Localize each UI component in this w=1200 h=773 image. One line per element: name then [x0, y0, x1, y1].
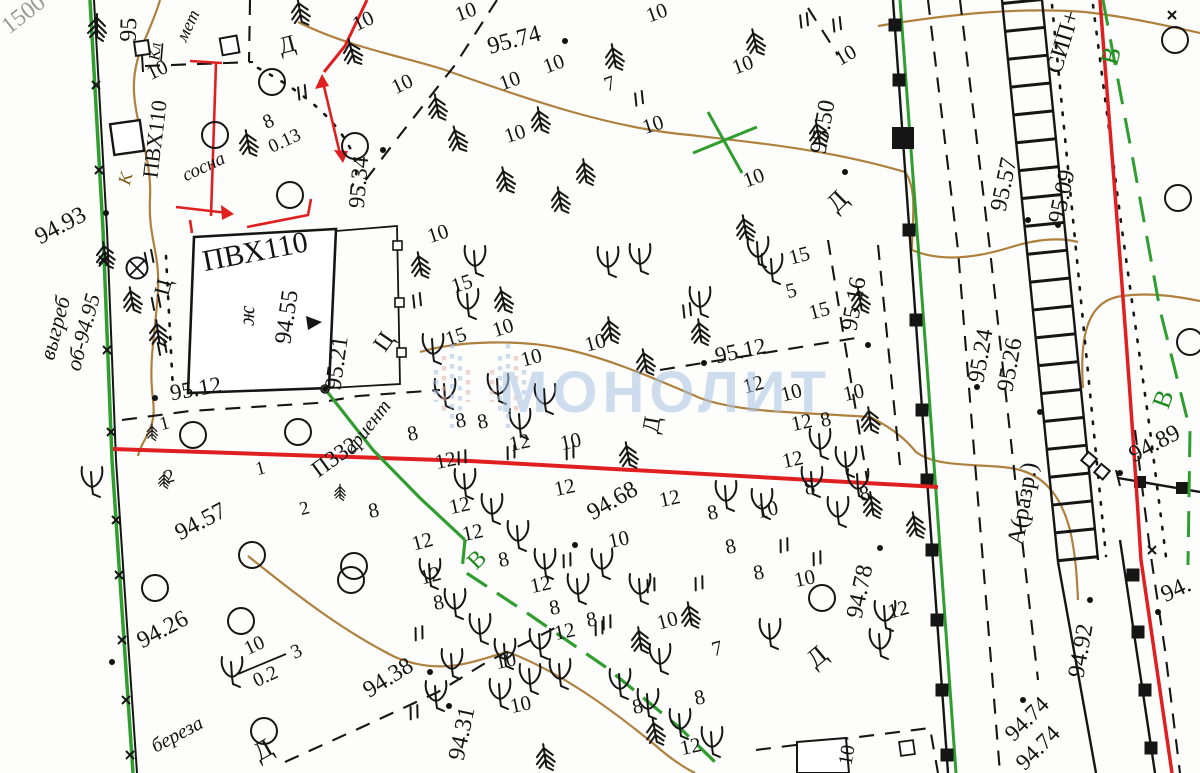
deciduous-tree-icon [445, 589, 466, 619]
map-label: 8 [630, 693, 645, 719]
map-label: 10 [489, 313, 516, 342]
map-label: 8 [366, 497, 381, 523]
map-label: 10 [643, 0, 671, 27]
canopy-circle-icon [1177, 329, 1200, 355]
grass-icon [410, 293, 424, 308]
map-label: 12 [552, 473, 578, 501]
elevation-dot-icon [152, 395, 158, 401]
conifer-tree-icon [689, 318, 711, 347]
map-label: 15 [786, 241, 812, 270]
map-label: 12 [657, 484, 683, 512]
elevation-dot-icon [109, 659, 115, 665]
deciduous-tree-icon [810, 429, 831, 459]
elevation-dot-icon [877, 545, 883, 551]
canopy-circle-icon [180, 422, 206, 448]
map-label: 7 [709, 635, 725, 661]
power-line [889, 0, 957, 773]
map-label: 10 [606, 525, 632, 553]
map-label: 94.93 [31, 202, 91, 250]
map-label: 7 [601, 70, 619, 96]
elevation-dot-icon [103, 210, 109, 216]
map-label: 95.57 [986, 155, 1023, 213]
map-label: 12 [507, 428, 533, 456]
elevation-dot-icon [1087, 597, 1093, 603]
map-label: 94.78 [842, 562, 879, 620]
map-label: 10 [830, 39, 860, 70]
deciduous-tree-icon [442, 649, 463, 679]
map-label: 8 [496, 546, 511, 572]
survey-map-canvas: 150095КлметПВХ110КДсосна80.1395.3495.741… [0, 0, 1200, 773]
map-label: 8 [705, 499, 720, 525]
deciduous-tree-icon [530, 629, 551, 659]
map-label: 12 [780, 445, 806, 473]
map-label: 10 [558, 427, 584, 455]
map-label: береза [148, 712, 207, 757]
elevation-dot-icon [974, 384, 980, 390]
map-label: 12 [433, 446, 459, 474]
elevation-dot-icon [446, 703, 452, 709]
deciduous-tree-icon [716, 481, 737, 511]
map-label: 94.92 [1064, 622, 1099, 680]
map-label: 10 [639, 110, 666, 139]
elevation-dot-icon [427, 669, 433, 675]
map-label: В [1095, 44, 1128, 68]
map-label: 10 [540, 49, 568, 79]
map-label: 1 [253, 457, 268, 480]
deciduous-tree-icon [598, 247, 619, 277]
map-label: 10 [508, 690, 534, 718]
grass-icon [830, 17, 844, 32]
map-label: 10 [740, 163, 768, 193]
deciduous-tree-icon [748, 237, 769, 267]
survey-map: 150095КлметПВХ110КДсосна80.1395.3495.741… [0, 0, 1200, 773]
map-label: В [462, 545, 492, 575]
map-label: 10 [501, 119, 528, 148]
canopy-circle-icon [338, 567, 364, 593]
map-label: 95.16 [837, 275, 872, 333]
elevation-dot-icon [1025, 217, 1031, 223]
deciduous-tree-icon [82, 467, 103, 497]
map-label: 95.12 [168, 372, 223, 406]
canopy-circle-icon [228, 608, 254, 634]
map-label: 12 [552, 617, 578, 645]
map-label: Д [820, 184, 853, 217]
map-label: 95.50 [806, 98, 841, 156]
map-label: 12 [409, 527, 435, 556]
map-label: сосна [179, 148, 229, 186]
map-label: ПВХ110 [137, 99, 171, 180]
map-label: 8 [584, 606, 599, 632]
canopy-circle-icon [1162, 27, 1188, 53]
elevation-dot-icon [842, 169, 848, 175]
elevation-dot-icon [380, 147, 386, 153]
map-label: 5 [783, 277, 799, 303]
conifer-tree-icon [904, 511, 926, 541]
map-label: Д [800, 640, 832, 674]
map-label: СИП+ [1041, 7, 1085, 76]
conifer-tree-icon [121, 286, 143, 316]
deciduous-tree-icon [423, 334, 444, 364]
map-label: 8 [475, 408, 490, 434]
deciduous-tree-icon [592, 549, 613, 579]
map-label: 10 [496, 66, 524, 96]
map-label: 94.26 [133, 606, 193, 654]
map-label: 12 [678, 732, 704, 760]
deciduous-tree-icon [222, 657, 243, 687]
deciduous-tree-icon [610, 669, 631, 699]
canopy-circle-icon [342, 133, 368, 159]
deciduous-tree-icon [836, 447, 857, 477]
watermark-text: МОНОЛИТ [499, 360, 831, 425]
left-fence [90, 0, 137, 773]
map-label: 8 [259, 109, 277, 133]
map-label: Ц [149, 276, 177, 298]
canopy-circle-icon [239, 542, 265, 568]
deciduous-tree-icon [482, 494, 503, 524]
conifer-tree-icon [529, 106, 551, 136]
elevation-dot-icon [562, 38, 568, 44]
deciduous-tree-icon [760, 619, 781, 649]
elevation-dot-icon [1037, 409, 1043, 415]
map-label: 95.34 [344, 155, 373, 209]
map-label: 12 [447, 491, 473, 519]
map-label: 95.74 [485, 21, 544, 60]
grass-icon [778, 538, 791, 552]
deciduous-tree-icon [828, 497, 849, 527]
map-label: 95.26 [993, 336, 1028, 394]
deciduous-tree-icon [426, 681, 447, 711]
map-label: 15 [806, 296, 832, 325]
deciduous-tree-icon [520, 664, 541, 694]
map-label: 10 [729, 50, 757, 80]
map-label: 10 [841, 378, 867, 406]
conifer-tree-icon [629, 626, 651, 655]
map-label: 8 [723, 533, 738, 559]
map-label: 10 [387, 68, 416, 99]
conifer-tree-icon [534, 743, 556, 772]
map-label: 8 [692, 684, 707, 710]
map-label: 10 [424, 219, 451, 248]
map-label: 10 [241, 631, 268, 659]
conifer-tree-icon [445, 124, 469, 155]
map-label: 10 [452, 0, 480, 26]
grass-icon [693, 576, 706, 590]
map-label: Ц [369, 327, 400, 356]
map-label: В [1146, 386, 1179, 412]
deciduous-tree-icon [630, 244, 651, 274]
map-label: 15 [448, 269, 475, 298]
elevation-dot-icon [1155, 609, 1161, 615]
grass-icon [680, 303, 694, 318]
map-label: К [114, 169, 137, 188]
grass-icon [632, 91, 646, 106]
canopy-circle-icon [142, 575, 168, 601]
watermark: МОНОЛИТ [436, 344, 831, 428]
deciduous-tree-icon [650, 644, 671, 674]
deciduous-tree-icon [762, 254, 783, 284]
map-label: 95.09 [1044, 167, 1081, 225]
deciduous-tree-icon [690, 287, 711, 317]
map-label: 94.68 [583, 476, 643, 526]
deciduous-tree-icon [568, 574, 589, 604]
elevation-dot-icon [865, 342, 871, 348]
conifer-tree-icon [549, 186, 571, 216]
deciduous-tree-icon [508, 521, 529, 551]
canopy-circle-icon [277, 182, 303, 208]
deciduous-tree-icon [550, 659, 571, 689]
map-label: 8 [751, 559, 766, 585]
map-label: 12 [528, 570, 554, 598]
structure-square [220, 36, 240, 56]
conifer-tree-icon [493, 165, 516, 195]
map-label: 0.2 [249, 661, 281, 692]
conifer-tree-icon [237, 129, 259, 159]
map-label: 8 [405, 420, 420, 446]
map-label: 10 [654, 606, 680, 635]
canopy-circle-icon [809, 585, 835, 611]
map-label: 94. [1157, 572, 1195, 608]
map-label: 1 [157, 412, 172, 435]
conifer-tree-icon [603, 43, 625, 73]
grass-icon [811, 551, 824, 565]
map-label: 94.57 [171, 498, 231, 546]
conifer-tree-icon [617, 441, 639, 471]
map-label: 95.24 [964, 327, 999, 385]
map-label: 10 [792, 564, 818, 592]
map-label: 2 [297, 497, 312, 520]
grass-icon [408, 705, 421, 719]
structure-left [110, 120, 144, 155]
conifer-tree-icon [574, 158, 596, 187]
map-label: 8 [453, 407, 468, 433]
map-label: А(разр.) [1003, 460, 1043, 547]
deciduous-tree-icon [470, 614, 491, 644]
cesspool-symbol [127, 258, 148, 279]
conifer-tree-icon [491, 285, 514, 315]
conifer-tree-icon [734, 214, 756, 244]
grass-icon [561, 553, 574, 567]
deciduous-tree-icon [630, 574, 651, 604]
map-label: ж [234, 305, 260, 327]
conifer-tree-icon [409, 251, 431, 281]
sapling-tree-icon [335, 484, 346, 500]
map-label: 10 [835, 743, 860, 767]
grass-icon [413, 626, 426, 640]
map-label: 94.38 [359, 653, 419, 704]
map-label: 95 [116, 17, 143, 42]
map-label: 12 [460, 518, 486, 546]
map-label: мет [171, 7, 203, 46]
deciduous-tree-icon [870, 629, 891, 659]
map-label: 94.31 [444, 704, 481, 762]
elevation-dot-icon [1117, 470, 1123, 476]
conifer-tree-icon [644, 718, 666, 748]
map-label: Д [276, 31, 299, 60]
map-label: 3 [287, 639, 305, 663]
map-label: 10 [755, 495, 781, 523]
grass-icon [797, 13, 811, 28]
conifer-tree-icon [679, 601, 701, 631]
grass-icon [295, 85, 309, 100]
canopy-circle-icon [285, 419, 311, 445]
map-label: 8 [547, 594, 562, 620]
elevation-dot-icon [572, 542, 578, 548]
map-label: 1500 [0, 0, 51, 40]
canopy-circle-icon [1165, 185, 1191, 211]
